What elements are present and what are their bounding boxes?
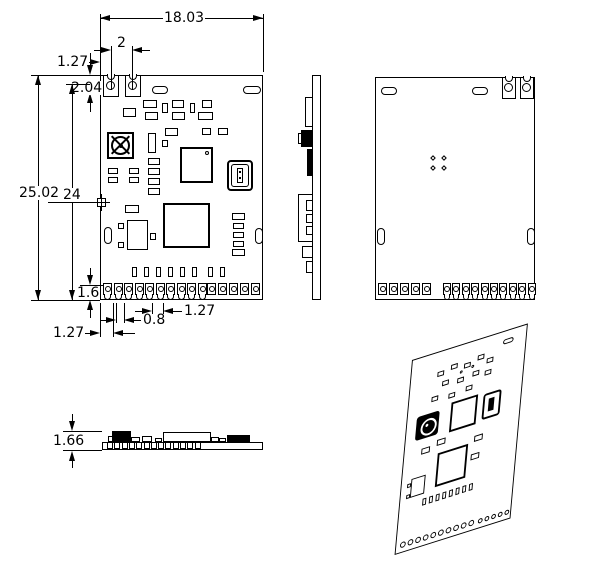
smd-component	[165, 128, 178, 136]
smd-component	[457, 376, 464, 383]
profile-pad	[114, 442, 120, 449]
dimension-arrow	[253, 15, 263, 21]
edge-pad	[220, 267, 225, 277]
side-component	[306, 261, 313, 273]
dim-module-thickness: 1.66	[52, 434, 85, 448]
edge-pad	[455, 487, 459, 495]
dimension-arrow	[35, 75, 41, 85]
pin-hole	[179, 286, 185, 292]
pin-hole	[453, 286, 459, 292]
through-hole-pad	[491, 513, 496, 519]
pin-castellation	[453, 294, 459, 300]
smd-component	[232, 213, 245, 220]
smd-component	[123, 108, 136, 117]
smd-component	[442, 379, 449, 386]
extension-line	[152, 303, 153, 314]
smd-component	[437, 370, 444, 377]
dimension-arrow	[132, 47, 142, 53]
via	[471, 364, 474, 368]
slot	[377, 228, 385, 245]
connector-dot	[239, 171, 241, 173]
dimension-arrow	[69, 451, 75, 461]
pin-castellation	[510, 294, 516, 300]
profile-pad	[165, 442, 171, 449]
through-hole-pad	[484, 515, 489, 521]
pin-hole	[189, 286, 195, 292]
side-component	[306, 214, 313, 223]
datum-cross	[101, 194, 102, 211]
dimension-line	[72, 414, 73, 421]
pin-hole	[510, 286, 516, 292]
pin-hole	[147, 286, 153, 292]
dimension-arrow	[87, 65, 93, 75]
dim-pin-pad-width: 0.8	[142, 313, 166, 327]
smd-component	[129, 177, 139, 183]
slot	[104, 227, 112, 244]
dimension-arrow	[35, 290, 41, 300]
dimension-arrow	[90, 330, 100, 336]
pin-hole	[402, 286, 408, 292]
castellated-pin	[400, 541, 406, 549]
pin-hole	[231, 286, 237, 292]
pin-castellation	[519, 294, 525, 300]
pin-castellation	[491, 294, 497, 300]
side-component	[307, 149, 313, 176]
castellated-pin	[445, 526, 451, 534]
pin-hole	[444, 286, 450, 292]
edge-pad	[144, 267, 149, 277]
edge-pad	[180, 267, 185, 277]
dimension-arrow	[106, 317, 116, 323]
edge-pad	[429, 495, 433, 503]
dim-first-pin-offset: 1.27	[52, 326, 85, 340]
smd-component	[464, 362, 471, 369]
edge-pad	[156, 267, 161, 277]
smd-component	[437, 437, 446, 446]
extension-line	[263, 14, 264, 72]
dimension-line	[134, 320, 141, 321]
pin-hole	[158, 286, 164, 292]
dimension-arrow	[101, 47, 111, 53]
smd-component	[486, 356, 493, 363]
castellated-pin	[438, 529, 444, 537]
smd-component	[108, 177, 118, 183]
pin-hole	[242, 286, 248, 292]
dim-hole-offset: 1.27	[56, 55, 89, 69]
ic-chip	[449, 394, 478, 432]
dimension-arrow	[163, 308, 173, 314]
ic-chip	[163, 203, 210, 248]
pin1-marker	[205, 151, 209, 155]
profile-pad	[158, 442, 164, 449]
through-hole-pad	[478, 517, 483, 523]
slot	[152, 86, 168, 94]
dimension-arrow	[69, 421, 75, 431]
dimension-line	[173, 311, 182, 312]
castellated-pin	[461, 522, 467, 530]
smd-component	[172, 100, 184, 108]
pin-castellation	[482, 294, 488, 300]
smd-component	[108, 168, 118, 174]
edge-pad	[208, 267, 213, 277]
profile-pad	[107, 442, 113, 449]
pin-castellation	[529, 294, 535, 300]
connector-dot	[239, 177, 241, 179]
dimension-line	[135, 311, 142, 312]
profile-pad	[136, 442, 142, 449]
smd-component	[233, 223, 244, 229]
side-component	[306, 200, 313, 211]
smd-component	[472, 370, 479, 377]
dimension-line	[90, 310, 91, 318]
smd-component	[148, 188, 160, 195]
ic-chip	[435, 444, 468, 487]
pin-hole	[200, 286, 206, 292]
profile-pad	[144, 442, 150, 449]
profile-pad	[151, 442, 157, 449]
smd-component	[477, 354, 484, 361]
castellated-pin	[468, 519, 474, 527]
pin-hole	[529, 286, 535, 292]
smd-component	[218, 128, 228, 135]
profile-pad	[129, 442, 135, 449]
pin-hole	[413, 286, 419, 292]
edge-pad	[192, 267, 197, 277]
smd-component	[431, 395, 438, 402]
slot	[503, 337, 514, 345]
mounting-hole	[522, 83, 531, 92]
side-component	[306, 226, 313, 235]
through-hole-pad	[504, 509, 509, 515]
slot	[527, 228, 535, 245]
pin-hole	[253, 286, 259, 292]
smd-component	[150, 233, 156, 240]
dimension-line	[123, 333, 135, 334]
extension-line	[116, 303, 117, 323]
edge-pad	[435, 493, 439, 501]
side-component	[305, 97, 313, 127]
edge-pad	[168, 267, 173, 277]
extension-line	[63, 431, 102, 432]
dimension-arrow	[87, 300, 93, 310]
profile-component	[227, 435, 250, 442]
profile-pad	[187, 442, 193, 449]
pcb-outline-back	[375, 77, 535, 300]
profile-pad	[122, 442, 128, 449]
dimension-line	[90, 103, 91, 112]
pin-hole	[380, 286, 386, 292]
smd-component	[198, 112, 213, 120]
pin-hole	[482, 286, 488, 292]
dimension-arrow	[69, 84, 75, 94]
technical-drawing-canvas: 18.03 2 1.27 2.04 25.02	[0, 0, 606, 571]
edge-pad	[449, 489, 453, 497]
pin-hole	[126, 286, 132, 292]
pin-hole	[391, 286, 397, 292]
smd-component	[451, 363, 458, 370]
pin-hole	[463, 286, 469, 292]
edge-pad	[469, 483, 473, 491]
side-component	[298, 133, 302, 144]
dimension-line	[142, 50, 150, 51]
regulator-ic	[410, 475, 426, 498]
smd-component	[118, 223, 124, 229]
castellated-pin	[430, 531, 436, 539]
smd-component	[148, 168, 160, 175]
profile-pad	[180, 442, 186, 449]
extension-line	[111, 46, 112, 90]
dim-board-width: 18.03	[163, 11, 205, 25]
dim-hole-pitch: 2	[116, 36, 127, 50]
pin-hole	[519, 286, 525, 292]
castellated-pin	[453, 524, 459, 532]
extension-line	[31, 75, 100, 76]
profile-component	[163, 432, 211, 442]
via	[460, 370, 463, 374]
dimension-arrow	[142, 308, 152, 314]
dim-body-height: 24	[62, 188, 82, 202]
dimension-arrow	[124, 317, 134, 323]
smd-component	[232, 249, 245, 256]
smd-component	[162, 103, 168, 113]
pin-castellation	[444, 294, 450, 300]
through-hole-pad	[498, 511, 503, 517]
dimension-arrow	[69, 290, 75, 300]
profile-pad	[173, 442, 179, 449]
pin-hole	[472, 286, 478, 292]
smd-component	[202, 128, 211, 135]
smd-component	[125, 205, 139, 213]
smd-component	[172, 112, 185, 120]
pin-castellation	[463, 294, 469, 300]
smd-component	[233, 241, 244, 247]
pin-hole	[491, 286, 497, 292]
profile-pad	[195, 442, 201, 449]
edge-pad	[442, 491, 446, 499]
castellated-pin	[415, 536, 421, 544]
dimension-arrow	[100, 15, 110, 21]
smd-component	[466, 384, 473, 391]
smd-component	[129, 168, 139, 174]
edge-pad	[132, 267, 137, 277]
profile-component	[112, 431, 131, 442]
smd-component	[233, 232, 244, 238]
smd-component	[421, 446, 430, 455]
smd-component	[202, 100, 212, 108]
smd-component	[448, 392, 455, 399]
dimension-line	[90, 268, 91, 275]
dimension-line	[90, 53, 91, 65]
pin-hole	[105, 286, 111, 292]
smd-component	[148, 178, 160, 185]
castellated-pin	[423, 534, 429, 542]
smd-component	[118, 242, 124, 248]
dimension-arrow	[87, 275, 93, 285]
pin-hole	[209, 286, 215, 292]
dim-pin-pitch: 1.27	[183, 304, 216, 318]
smd-component	[190, 103, 195, 113]
slot	[255, 228, 263, 244]
smd-component	[162, 140, 168, 147]
smd-component	[143, 100, 157, 108]
smd-component	[148, 133, 156, 153]
pin-hole	[220, 286, 226, 292]
profile-component	[219, 438, 226, 442]
pin-castellation	[472, 294, 478, 300]
pin-hole	[168, 286, 174, 292]
smd-component	[470, 452, 479, 461]
smd-component	[484, 369, 491, 376]
smd-component	[406, 494, 410, 499]
pin-castellation	[500, 294, 506, 300]
slot	[472, 87, 488, 95]
pin-hole	[500, 286, 506, 292]
edge-pad	[422, 498, 426, 506]
side-component	[302, 246, 313, 258]
castellated-pin	[407, 538, 413, 546]
extension-line	[100, 14, 101, 75]
dimension-line	[72, 461, 73, 468]
dim-pin-pad-height: 1.6	[76, 286, 100, 300]
pin-hole	[137, 286, 143, 292]
isometric-view	[395, 323, 528, 555]
mounting-hole	[504, 83, 513, 92]
pin-hole	[116, 286, 122, 292]
profile-component	[211, 437, 219, 442]
pin-hole	[424, 286, 430, 292]
slot	[381, 87, 397, 95]
dim-board-height: 25.02	[18, 186, 60, 200]
smd-component	[474, 433, 483, 442]
edge-pad	[462, 485, 466, 493]
regulator-ic	[127, 220, 148, 250]
pcb-edge	[312, 75, 321, 300]
slot	[243, 86, 261, 94]
smd-component	[148, 158, 160, 165]
dimension-arrow	[113, 330, 123, 336]
smd-component	[145, 112, 158, 120]
side-component	[301, 130, 313, 147]
